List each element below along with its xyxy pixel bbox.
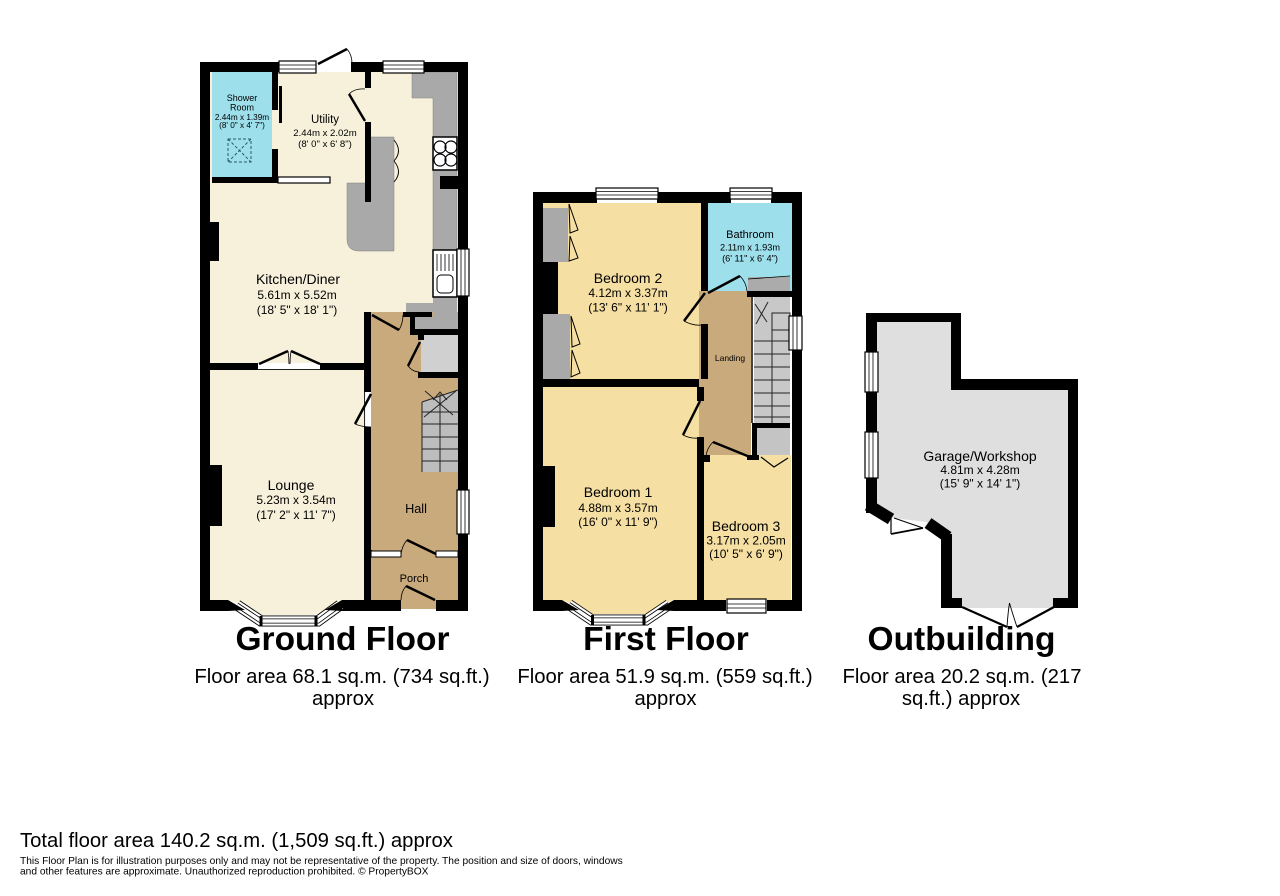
svg-text:and other features are approxi: and other features are approximate. Unau… xyxy=(20,867,429,878)
svg-text:Bedroom 2: Bedroom 2 xyxy=(594,270,663,286)
svg-text:5.23m x 3.54m: 5.23m x 3.54m xyxy=(256,493,335,507)
svg-text:sq.ft.) approx: sq.ft.) approx xyxy=(902,688,1020,710)
svg-text:4.88m x 3.57m: 4.88m x 3.57m xyxy=(578,501,657,515)
svg-text:(6' 11" x 6' 4"): (6' 11" x 6' 4") xyxy=(722,254,778,264)
svg-text:Outbuilding: Outbuilding xyxy=(868,621,1056,658)
svg-text:Hall: Hall xyxy=(405,502,427,516)
svg-text:Lounge: Lounge xyxy=(268,477,315,493)
svg-text:Total floor area 140.2 sq.m. (: Total floor area 140.2 sq.m. (1,509 sq.f… xyxy=(20,830,453,852)
svg-text:(15' 9" x 14' 1"): (15' 9" x 14' 1") xyxy=(940,477,1020,491)
svg-text:approx: approx xyxy=(634,688,696,710)
svg-text:4.12m x 3.37m: 4.12m x 3.37m xyxy=(588,286,667,300)
svg-text:5.61m x 5.52m: 5.61m x 5.52m xyxy=(257,288,336,302)
svg-text:approx: approx xyxy=(312,688,374,710)
svg-text:Bedroom 3: Bedroom 3 xyxy=(712,518,781,534)
svg-text:(17' 2" x 11' 7"): (17' 2" x 11' 7") xyxy=(256,508,336,522)
svg-text:This Floor Plan is for illustr: This Floor Plan is for illustration purp… xyxy=(20,856,623,867)
svg-text:Floor area 20.2 sq.m. (217: Floor area 20.2 sq.m. (217 xyxy=(843,666,1082,688)
svg-text:2.44m x 2.02m: 2.44m x 2.02m xyxy=(293,128,356,139)
svg-text:Room: Room xyxy=(230,103,254,113)
svg-text:(18' 5" x 18' 1"): (18' 5" x 18' 1") xyxy=(257,303,337,317)
svg-text:Floor area 51.9 sq.m. (559 sq.: Floor area 51.9 sq.m. (559 sq.ft.) xyxy=(517,666,812,688)
svg-text:Shower: Shower xyxy=(227,93,258,103)
svg-text:Porch: Porch xyxy=(400,573,429,585)
svg-text:Bathroom: Bathroom xyxy=(726,229,774,241)
svg-text:(10' 5" x 6' 9"): (10' 5" x 6' 9") xyxy=(709,547,783,561)
svg-text:(16' 0" x 11' 9"): (16' 0" x 11' 9") xyxy=(578,515,658,529)
svg-text:(8' 0" x 4' 7"): (8' 0" x 4' 7") xyxy=(219,121,265,130)
svg-text:Kitchen/Diner: Kitchen/Diner xyxy=(256,271,340,287)
svg-text:Bedroom 1: Bedroom 1 xyxy=(584,484,653,500)
svg-text:(8' 0" x 6' 8"): (8' 0" x 6' 8") xyxy=(298,139,352,150)
svg-text:Utility: Utility xyxy=(311,114,339,126)
svg-text:Floor area 68.1 sq.m. (734 sq.: Floor area 68.1 sq.m. (734 sq.ft.) xyxy=(194,666,489,688)
svg-text:Landing: Landing xyxy=(715,353,746,363)
svg-text:Ground Floor: Ground Floor xyxy=(236,621,450,658)
svg-text:Garage/Workshop: Garage/Workshop xyxy=(923,448,1037,464)
svg-text:2.11m x 1.93m: 2.11m x 1.93m xyxy=(720,243,780,253)
svg-text:4.81m x 4.28m: 4.81m x 4.28m xyxy=(940,463,1019,477)
svg-text:First Floor: First Floor xyxy=(583,621,749,658)
svg-text:(13' 6" x 11' 1"): (13' 6" x 11' 1") xyxy=(588,301,668,315)
svg-text:3.17m x 2.05m: 3.17m x 2.05m xyxy=(706,534,785,548)
